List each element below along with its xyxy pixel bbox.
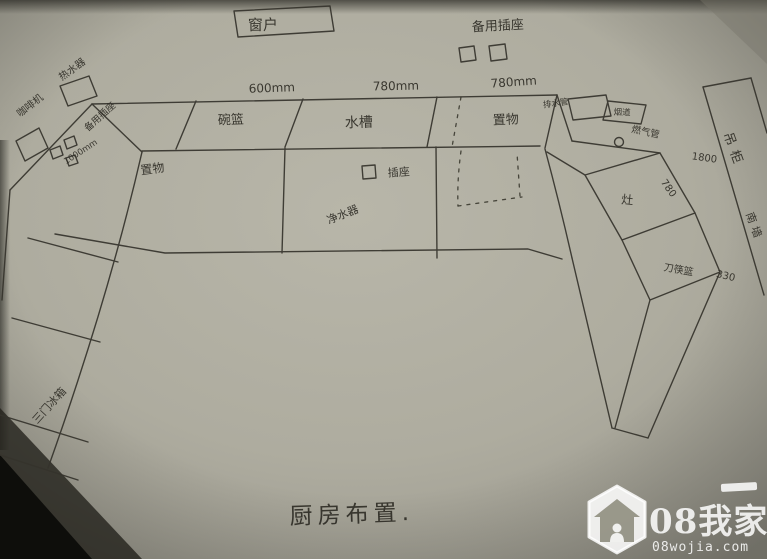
dim-600mm: 600mm (248, 80, 295, 96)
section-storage-right: 置物 (492, 112, 519, 128)
section-sink: 水槽 (345, 115, 374, 132)
stove-label: 灶 (621, 192, 634, 207)
section-bowl-basket: 碗篮 (218, 112, 245, 129)
photo-top-shadow (0, 0, 767, 14)
flue-label: 烟道 (613, 107, 631, 119)
person-icon-head (613, 524, 622, 533)
kitchen-sketch-svg: 窗户 备用插座 600mm 780mm 780mm 碗篮 水槽 置物 插座 净水… (0, 0, 767, 559)
window-label: 窗户 (248, 16, 278, 35)
dim-780mm-1: 780mm (373, 79, 420, 94)
counter-outlet-label: 插座 (387, 164, 410, 180)
front-divider-2 (436, 147, 437, 258)
sketch-title: 厨房布置. (289, 500, 414, 530)
photo-left-shadow (0, 140, 10, 450)
watermark-site: 08wojia.com (652, 540, 749, 555)
spare-outlet-top-label: 备用插座 (471, 17, 524, 36)
photo-of-sketch: 窗户 备用插座 600mm 780mm 780mm 碗篮 水槽 置物 插座 净水… (0, 0, 767, 559)
watermark-brand: 08我家 (649, 502, 767, 542)
